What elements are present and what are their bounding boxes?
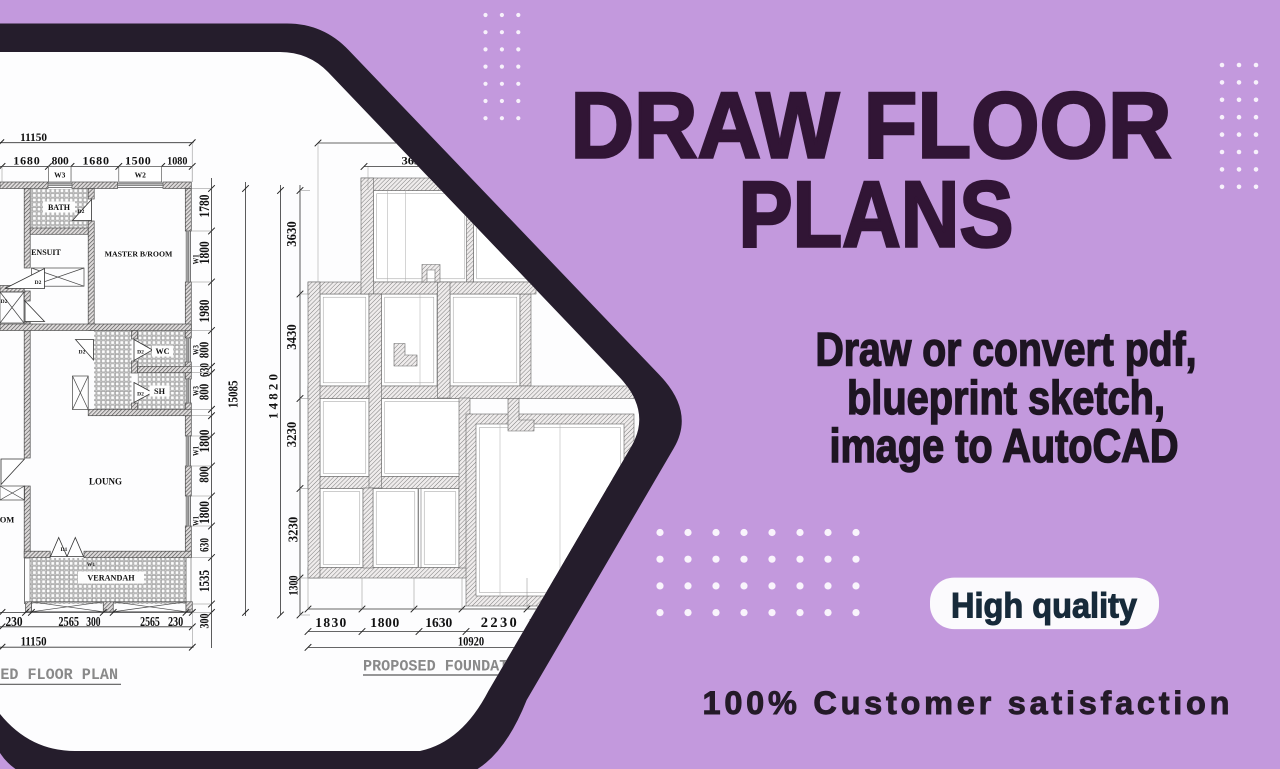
svg-text:D2: D2 [137, 350, 144, 356]
svg-text:3230: 3230 [285, 422, 300, 447]
svg-text:1300: 1300 [285, 576, 300, 596]
svg-text:800: 800 [197, 342, 212, 359]
svg-text:D1: D1 [61, 547, 68, 553]
svg-text:SH: SH [154, 387, 166, 396]
svg-text:300: 300 [197, 614, 212, 629]
svg-text:D2: D2 [1, 299, 8, 305]
svg-text:1800: 1800 [370, 615, 399, 630]
svg-text:D2: D2 [137, 392, 144, 398]
svg-text:11150: 11150 [20, 130, 47, 144]
svg-text:blueprint sketch,: blueprint sketch, [847, 372, 1165, 425]
svg-text:Draw or convert pdf,: Draw or convert pdf, [816, 324, 1197, 377]
svg-text:1080: 1080 [167, 154, 187, 168]
svg-text:1780: 1780 [197, 195, 213, 218]
svg-text:1800: 1800 [197, 430, 213, 453]
svg-text:100% Customer satisfaction: 100% Customer satisfaction [703, 685, 1230, 721]
svg-text:11150: 11150 [21, 634, 47, 648]
svg-text:PLANS: PLANS [739, 162, 1014, 267]
svg-text:OM: OM [0, 515, 14, 525]
svg-text:VERANDAH: VERANDAH [87, 574, 135, 583]
svg-text:1535: 1535 [197, 570, 213, 592]
svg-text:1800: 1800 [197, 501, 213, 524]
svg-text:W1: W1 [87, 562, 96, 568]
svg-text:LOUNG: LOUNG [89, 477, 122, 487]
svg-text:WC: WC [155, 347, 169, 356]
svg-text:BATH: BATH [48, 203, 71, 212]
svg-text:630: 630 [197, 363, 211, 377]
svg-text:1630: 1630 [425, 615, 452, 630]
svg-text:D2: D2 [78, 209, 85, 215]
svg-text:1800: 1800 [197, 241, 213, 264]
svg-text:800: 800 [197, 466, 212, 483]
svg-text:10920: 10920 [458, 635, 484, 649]
svg-text:15085: 15085 [226, 380, 241, 408]
svg-text:800: 800 [197, 384, 212, 401]
svg-text:3230: 3230 [287, 517, 302, 542]
svg-text:630: 630 [197, 538, 211, 552]
svg-text:800: 800 [52, 154, 69, 168]
svg-text:image to AutoCAD: image to AutoCAD [830, 420, 1179, 473]
svg-text:W3: W3 [54, 171, 66, 180]
svg-text:D2: D2 [35, 280, 42, 286]
svg-text:PROPOSED FLOOR PLAN: PROPOSED FLOOR PLAN [0, 666, 118, 684]
svg-text:3630: 3630 [285, 221, 300, 246]
svg-text:D2: D2 [79, 350, 86, 356]
svg-text:High quality: High quality [951, 585, 1137, 625]
svg-text:W2: W2 [135, 171, 147, 180]
svg-text:1680: 1680 [82, 154, 109, 168]
svg-text:1500: 1500 [125, 154, 151, 168]
svg-text:1980: 1980 [197, 300, 213, 323]
svg-text:1680: 1680 [13, 154, 40, 168]
svg-text:MASTER B/ROOM: MASTER B/ROOM [105, 250, 173, 259]
svg-text:ENSUIT: ENSUIT [31, 248, 61, 257]
svg-text:1830: 1830 [315, 615, 346, 630]
svg-text:3430: 3430 [285, 324, 300, 349]
